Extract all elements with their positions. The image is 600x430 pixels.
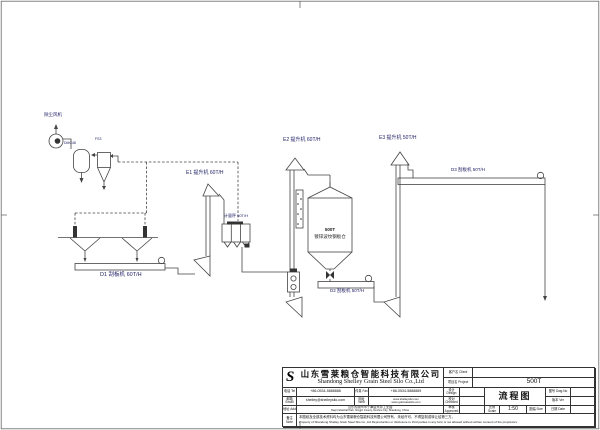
- tel-value: +86-0534-5888888: [297, 388, 355, 397]
- checked-value: [460, 397, 485, 406]
- design-value: [460, 388, 485, 397]
- conveyor-d1-label: D1 刮板机 60T/H: [100, 273, 142, 279]
- design-label: 设计 Design: [444, 388, 460, 397]
- company-logo: S: [286, 369, 294, 386]
- web-label: 网址 Web: [355, 397, 369, 406]
- checked-label: 校对 Checked: [444, 397, 460, 406]
- email-value: shelley@shelleysilo.com: [297, 397, 355, 406]
- sheet-frame: [1, 1, 599, 429]
- weigher-label: 计量秤 60T/H: [224, 214, 248, 218]
- conveyor-d3: [398, 172, 547, 301]
- dwg-no-value: [571, 388, 596, 397]
- fan-label: 除尘风机: [44, 113, 62, 118]
- elevator-e1-label: E1 提升机 60T/H: [186, 171, 224, 176]
- web-line-2: www.grainsteelsilo.com: [391, 401, 420, 404]
- weigher: [222, 222, 288, 273]
- elevator-e3-label: E3 提升机 50T/H: [379, 136, 417, 141]
- conveyor-d2-label: D2 刮板机 50T/H: [330, 289, 364, 294]
- scale-label: 比例 Scale: [485, 406, 500, 414]
- address-label: 地址 Add: [283, 406, 297, 414]
- elevator-e3: [384, 152, 413, 317]
- approved-label: 审核 Approved: [444, 406, 460, 414]
- conveyor-d3-label: D3 刮板机 50T/H: [451, 168, 485, 173]
- filter-vessel: [74, 150, 90, 184]
- process-flow-artwork: [0, 0, 600, 430]
- client-label: 客户名 Client: [444, 368, 473, 378]
- fax-value: +86-0534-5888889: [369, 388, 444, 397]
- version-label: 版本 Ver: [546, 397, 571, 406]
- company-name-en: Shandong Shelley Grain Steel Silo Co.,Lt…: [317, 379, 423, 386]
- company-cell: S 山东雪莱粮仓智能科技有限公司 Shandong Shelley Grain …: [283, 368, 444, 388]
- filter-model-label: DMC48: [64, 142, 76, 146]
- elevator-e1: [194, 184, 224, 276]
- title-block: S 山东雪莱粮仓智能科技有限公司 Shandong Shelley Grain …: [282, 367, 595, 427]
- storage-bins: [58, 226, 158, 262]
- address-en: Daqi Industrial Park, Ningjin County, De…: [331, 410, 409, 413]
- address-value: 山东省德州市宁津县大祁工业园 Daqi Industrial Park, Nin…: [297, 406, 444, 414]
- drawing-sheet: 除尘风机 DMC48 FS3 E1 提升机 60T/H 计量秤 60T/H E2…: [0, 0, 600, 430]
- project-label: 项目名 Project: [444, 378, 473, 388]
- tel-label: 电话 Tel: [283, 388, 297, 397]
- size-label: 图幅 Size: [527, 406, 546, 414]
- web-value: www.shelleysilo.com www.grainsteelsilo.c…: [369, 397, 444, 406]
- scale-value: 1:50: [500, 406, 527, 414]
- silo-capacity-label: 500T: [325, 228, 335, 233]
- fax-label: 传真 Fax: [355, 388, 369, 397]
- silo-type-label: 镀锌波纹钢板仓: [314, 235, 346, 240]
- date-value: [571, 406, 596, 414]
- note-label: 备注 Note: [283, 414, 297, 428]
- disclaimer-cn: 本图纸及全部技术资料均为山东雪莱粮仓智能科技有限公司所有，未经许可，不得复制或转…: [299, 416, 455, 420]
- approved-value: [460, 406, 485, 414]
- elevator-e2-label: E2 提升机 60T/H: [283, 138, 321, 143]
- cyclone: [91, 153, 118, 191]
- disclaimer-en: Property of Shandong Shelley Grain Steel…: [299, 421, 518, 424]
- cyclone-model-label: FS3: [95, 138, 101, 142]
- date-label: 日期 Date: [546, 406, 571, 414]
- version-value: [571, 397, 596, 406]
- dwg-no-label: 图号 Dwg.No: [546, 388, 571, 397]
- disclaimer: 本图纸及全部技术资料均为山东雪莱粮仓智能科技有限公司所有，未经许可，不得复制或转…: [297, 414, 596, 428]
- email-label: 邮箱 Email: [283, 397, 297, 406]
- project-value: 500T: [473, 378, 596, 388]
- client-value: [473, 368, 596, 378]
- drawing-name: 流程图: [485, 388, 546, 406]
